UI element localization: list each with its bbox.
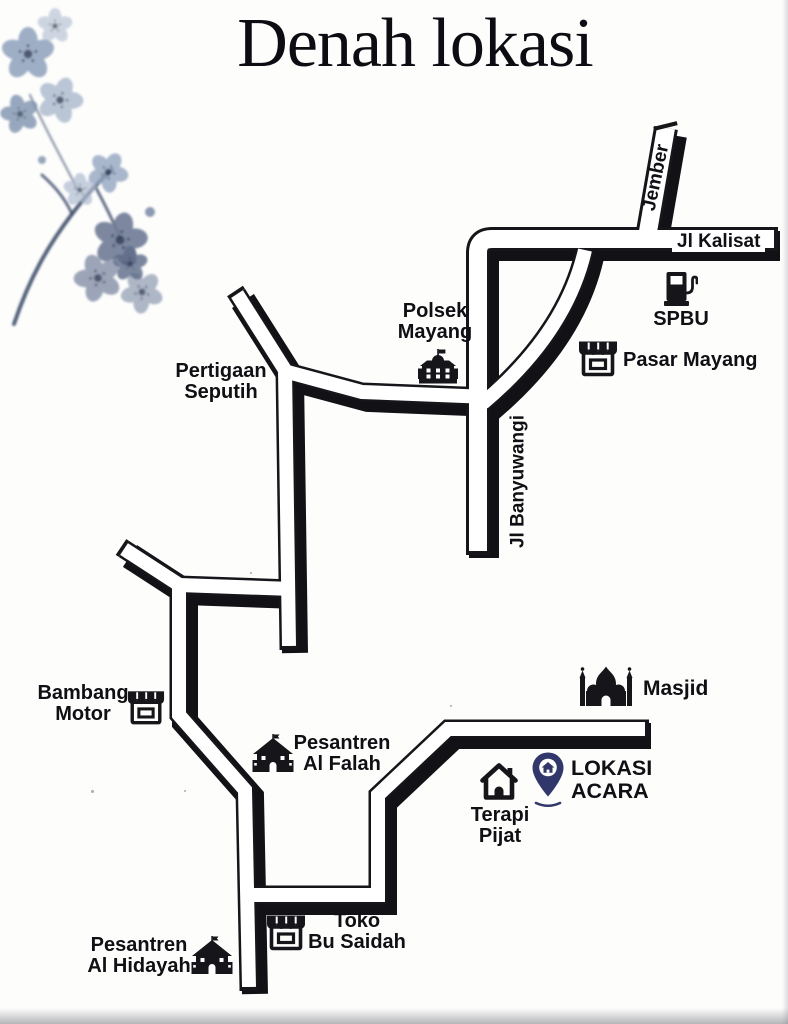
blossom-branch-decoration xyxy=(0,0,175,330)
label-terapi-pijat: Terapi Pijat xyxy=(450,805,550,847)
road-label-jl-kalisat: Jl Kalisat xyxy=(672,231,765,252)
label-polsek-mayang: Polsek Mayang xyxy=(355,301,515,343)
scan-bottom-shade xyxy=(0,1008,788,1024)
label-masjid: Masjid xyxy=(643,678,708,699)
scan-speck xyxy=(450,705,452,707)
storefront-icon xyxy=(124,688,168,726)
label-pesantren-al-falah: Pesantren Al Falah xyxy=(290,733,394,775)
scan-edge-shade xyxy=(782,0,788,1024)
gas-pump-icon xyxy=(663,269,698,307)
scan-speck xyxy=(250,572,252,574)
school-house-icon xyxy=(189,936,235,976)
label-pasar-mayang: Pasar Mayang xyxy=(623,350,758,371)
home-outline-icon xyxy=(477,760,521,802)
location-pin-icon xyxy=(530,751,566,809)
page-title: Denah lokasi xyxy=(180,4,650,84)
road-shadows xyxy=(130,135,780,994)
road-label-jl-banyuwangi: Jl Banyuwangi xyxy=(509,407,528,557)
school-house-icon xyxy=(251,734,295,774)
scan-speck xyxy=(184,790,186,792)
label-lokasi-acara: LOKASI ACARA xyxy=(571,757,652,803)
label-toko-bu-saidah: Toko Bu Saidah xyxy=(298,911,416,953)
mosque-icon xyxy=(577,664,635,711)
storefront-icon xyxy=(575,338,621,378)
police-building-icon xyxy=(414,348,462,388)
scan-speck xyxy=(91,790,94,793)
label-spbu: SPBU xyxy=(640,309,722,330)
label-pertigaan-seputih: Pertigaan Seputih xyxy=(146,361,296,403)
map-page: Denah lokasi Jember Jl Kalisat Jl Banyuw… xyxy=(0,0,788,1024)
